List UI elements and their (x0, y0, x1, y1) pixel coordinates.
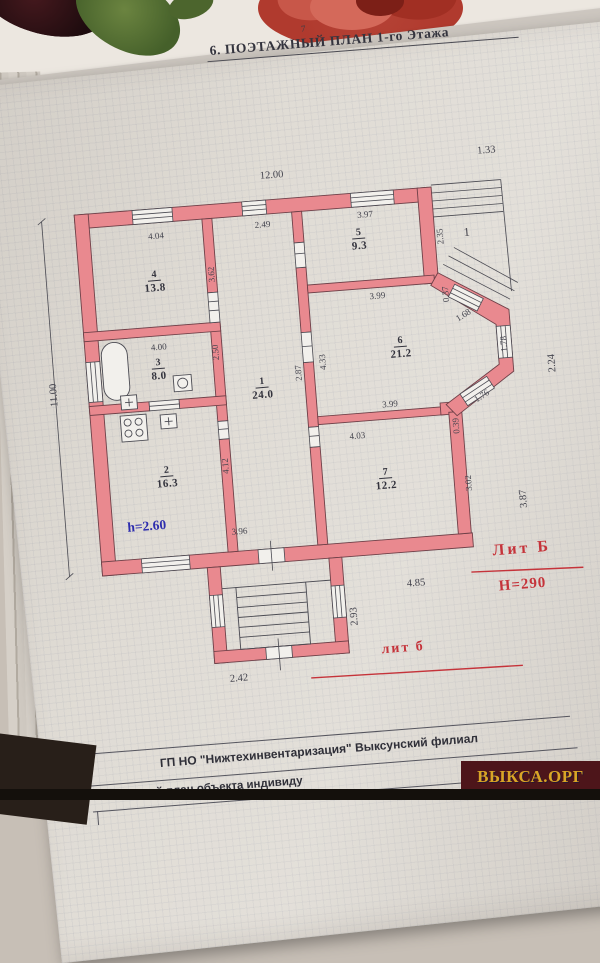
dim-porch-depth: 2.93 (348, 607, 360, 626)
table-surface-corner (0, 731, 96, 825)
dim-bottom-right: 4.85 (407, 577, 426, 589)
ceiling-height-mark: h=2.60 (127, 517, 167, 536)
dim-r7-height: 3.02 (463, 475, 474, 491)
room-label-4: 4 13.8 (143, 263, 167, 294)
page-content: 7 6. ПОЭТАЖНЫЙ ПЛАН 1-го Этажа (0, 0, 600, 819)
watermark-badge: ВЫКСА.ОРГ (461, 761, 600, 792)
photo-bottom-edge (0, 789, 600, 800)
dim-r6-width-bottom: 3.99 (382, 398, 398, 409)
room-number: 1 (255, 376, 269, 389)
dim-r3-width: 4.00 (151, 341, 167, 352)
dim-right-upper: 2.24 (546, 353, 558, 372)
dim-r3-height: 2.50 (210, 344, 221, 360)
room-number: 2 (160, 464, 174, 477)
porch-number: 1 (463, 225, 470, 240)
room-area: 9.3 (351, 239, 367, 252)
room-number: 4 (147, 269, 161, 282)
room-area: 13.8 (144, 281, 166, 295)
dim-top: 12.00 (259, 169, 283, 182)
floor-plan-drawing (32, 146, 600, 762)
room-label-5: 5 9.3 (350, 221, 368, 252)
room-area: 8.0 (151, 369, 167, 382)
dim-r4-height: 3.62 (206, 266, 217, 282)
room-number: 6 (393, 335, 407, 348)
room-number: 7 (378, 466, 392, 479)
room-label-1: 1 24.0 (250, 370, 274, 401)
room-label-6: 6 21.2 (389, 329, 413, 360)
room-area: 21.2 (390, 347, 412, 361)
room-area: 24.0 (252, 388, 274, 402)
room-label-7: 7 12.2 (374, 461, 398, 492)
dim-r2-width: 3.96 (231, 526, 247, 537)
dim-r5-height: 2.35 (434, 228, 445, 244)
room-number: 5 (352, 227, 366, 240)
dim-bay-window-side: 1.78 (498, 336, 509, 352)
page-number: 7 (301, 23, 306, 33)
room-area: 12.2 (375, 478, 397, 492)
lit-b-porch-label: лит б (381, 639, 425, 658)
dim-r4-width: 4.04 (148, 230, 164, 241)
dim-hall-width: 2.49 (254, 219, 270, 230)
dim-right-lower: 3.87 (518, 489, 530, 508)
dim-r1-height-a: 2.87 (293, 365, 304, 381)
toilet-icon (173, 374, 192, 391)
dim-porch-width: 2.42 (229, 672, 248, 684)
dim-r2-height: 4.12 (220, 458, 231, 474)
lit-b-underline (471, 563, 583, 576)
dim-r1-height-b: 4.33 (317, 354, 328, 370)
lit-b-porch-underline (311, 661, 523, 682)
dim-left: 11.00 (48, 383, 61, 407)
staircase (222, 580, 336, 650)
floor-plan: 1 24.0 2 16.3 3 8.0 4 13.8 5 9.3 6 21.2 … (32, 146, 600, 762)
stove-icon (120, 414, 148, 442)
dim-r7-width: 4.03 (349, 430, 365, 441)
dim-r6-width-top: 3.99 (369, 290, 385, 301)
room-label-2: 2 16.3 (155, 459, 179, 490)
room-area: 16.3 (156, 477, 178, 491)
room-label-3: 3 8.0 (150, 352, 168, 383)
dim-bay-offset-top: 0.37 (440, 286, 451, 302)
dim-r5-width: 3.97 (357, 209, 373, 220)
dim-top-right: 1.33 (477, 144, 496, 156)
dim-bay-offset-bottom: 0.39 (450, 418, 461, 434)
page-title: 6. ПОЭТАЖНЫЙ ПЛАН 1-го Этажа (209, 24, 450, 59)
room-number: 3 (151, 357, 165, 370)
plumbing-fixtures (100, 337, 196, 444)
bathtub-icon (100, 341, 130, 401)
